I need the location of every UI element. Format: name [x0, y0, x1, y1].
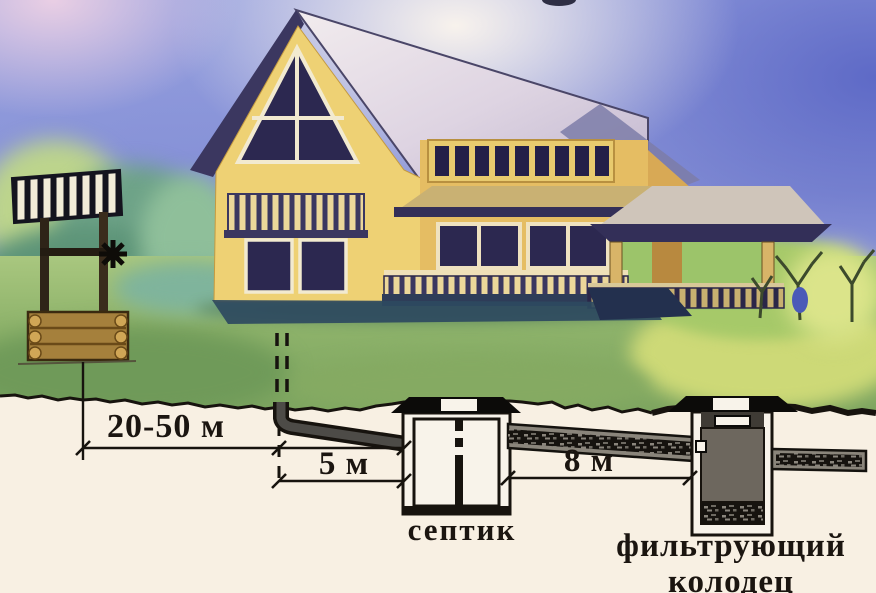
filter-well-label: фильтрующий колодец [606, 528, 856, 593]
filter-well-inner-hatch [715, 416, 750, 426]
dimension-label-house-distance: 5 м [294, 446, 394, 483]
filter-well-inlet [696, 441, 706, 452]
filter-well-body [701, 428, 764, 502]
sewer-standpipe-dashed [277, 333, 287, 404]
dimension-label-well-distance: 20-50 м [86, 408, 246, 446]
filter-well-hatch [712, 397, 750, 411]
septic-placement-diagram: 20-50 м 5 м 8 м септик фильтрующий колод… [0, 0, 876, 593]
filter-well-gravel [701, 502, 764, 524]
septic-tank-graphic [391, 397, 521, 514]
septic-hatch [440, 398, 478, 412]
dimension-label-filter-distance: 8 м [539, 443, 639, 480]
underground-diagram [0, 0, 876, 593]
filter-well-label-line2: колодец [606, 564, 856, 593]
filter-well-label-line1: фильтрующий [606, 528, 856, 564]
septic-tank-label: септик [387, 512, 537, 548]
filter-outlet-pipe [772, 449, 866, 471]
